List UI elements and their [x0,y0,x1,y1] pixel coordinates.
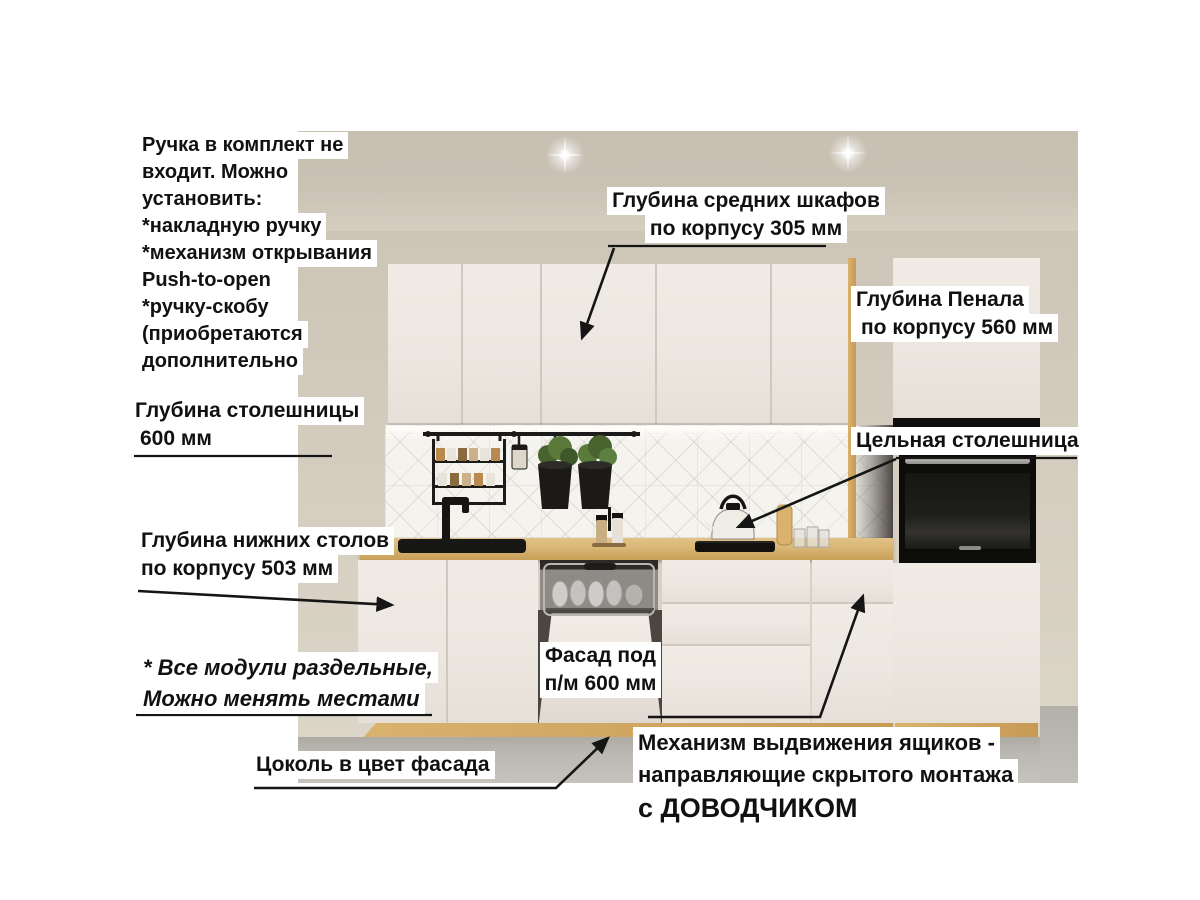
drawer-front [662,604,810,644]
upper-cabinet-door [542,264,655,425]
annotation-drawer-mechanism: Механизм выдвижения ящиков - направляющи… [633,727,1018,825]
annotation-line: (приобретаются [137,321,308,348]
oven-handle [905,458,1030,464]
upper-cabinet-door [388,264,461,425]
upper-cabinet-door [657,264,770,425]
annotation-line: *накладную ручку [137,213,326,240]
annotation-line: установить: [137,186,267,213]
annotation-line: Механизм выдвижения ящиков - [633,727,1000,759]
upper-cabinet-door [772,264,848,425]
upper-cabinet-row [388,264,848,425]
annotation-modules-note: * Все модули раздельные, Можно менять ме… [138,652,438,714]
annotation-line: Глубина Пенала [851,286,1029,314]
annotated-kitchen-image: Ручка в комплект не входит. Можно устано… [0,0,1200,900]
base-cabinet-door [448,560,538,723]
annotation-base-depth: Глубина нижних столов по корпусу 503 мм [136,527,394,583]
annotation-dishwasher-facade: Фасад под п/м 600 мм [528,642,673,698]
annotation-solid-countertop: Цельная столешница [851,427,1084,455]
tall-cabinet-lower-door [893,563,1040,723]
annotation-line: Push-to-open [137,267,276,294]
annotation-line: * Все модули раздельные, [138,652,438,683]
annotation-line: п/м 600 мм [540,670,662,698]
countertop [360,538,893,560]
spotlight-ray [829,152,867,154]
annotation-line: по корпусу 305 мм [645,215,847,243]
spotlight-ray [546,154,584,156]
annotation-line: по корпусу 503 мм [136,555,338,583]
floor [1040,706,1078,783]
annotation-line: дополнительно [137,348,303,375]
oven-logo [959,546,981,550]
oven-window [905,473,1030,549]
spotlight-left [543,133,587,177]
annotation-line: 600 мм [130,425,217,453]
upper-cabinet-door [463,264,540,425]
annotation-line: Цоколь в цвет фасада [251,751,495,779]
annotation-line: *механизм открывания [137,240,377,267]
annotation-countertop-depth: Глубина столешницы 600 мм [130,397,364,453]
annotation-line: Глубина столешницы [130,397,364,425]
annotation-plinth-note: Цоколь в цвет фасада [251,751,495,779]
annotation-line: Глубина средних шкафов [607,187,885,215]
drawer-stack [662,560,810,723]
right-base-cabinet [812,560,893,723]
annotation-line: Можно менять местами [138,683,425,714]
annotation-mid-cabinet-depth: Глубина средних шкафов по корпусу 305 мм [596,187,896,243]
annotation-line: Цельная столешница [851,427,1084,455]
annotation-handle-note: Ручка в комплект не входит. Можно устано… [137,132,377,375]
annotation-line: направляющие скрытого монтажа [633,759,1018,791]
annotation-line: по корпусу 560 мм [851,314,1058,342]
annotation-line: входит. Можно [137,159,293,186]
drawer-front [812,560,893,602]
base-cabinet-door [812,604,893,723]
annotation-line: *ручку-скобу [137,294,274,321]
drawer-front [662,646,810,723]
annotation-emphasis: с ДОВОДЧИКОМ [633,791,862,825]
spotlight-right [826,131,870,175]
annotation-line: Фасад под [540,642,661,670]
under-cabinet-light [386,426,858,444]
annotation-line: Ручка в комплект не [137,132,348,159]
annotation-line: Глубина нижних столов [136,527,394,555]
annotation-penal-depth: Глубина Пенала по корпусу 560 мм [851,286,1058,342]
drawer-front [662,560,810,602]
